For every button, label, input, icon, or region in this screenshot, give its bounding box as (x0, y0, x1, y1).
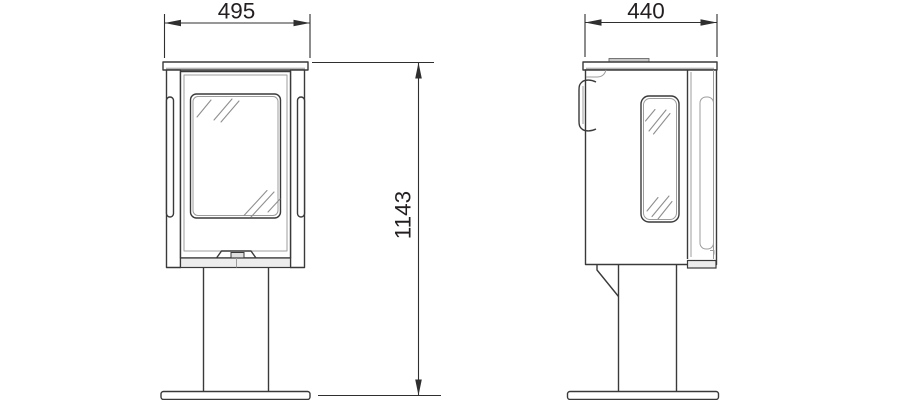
bottom-lip (688, 261, 717, 269)
plinth-strip (181, 258, 291, 268)
arrowhead-right-icon (701, 19, 718, 26)
arrowhead-left-icon (585, 19, 602, 26)
dim-label-side-depth: 440 (627, 0, 665, 24)
base-plate-side (568, 392, 719, 400)
front-view (161, 62, 310, 400)
dim-side-depth: 440 (585, 0, 717, 57)
left-air-slot (167, 97, 174, 217)
dim-label-overall-height: 1143 (391, 191, 416, 239)
dim-label-front-width: 495 (218, 0, 256, 24)
stove-body-side (586, 70, 717, 265)
dim-front-width: 495 (165, 0, 311, 58)
pedestal-sloped-cover (597, 265, 619, 297)
door-latch-handle (231, 253, 244, 259)
arrowhead-right-icon (294, 20, 311, 27)
arrowhead-down-icon (415, 380, 422, 396)
side-view (568, 59, 719, 400)
door-outer-frame (181, 72, 291, 259)
pedestal-front (204, 268, 269, 392)
right-air-slot (298, 97, 305, 217)
front-door (181, 72, 291, 259)
stove-dimension-drawing: 495 440 1143 (0, 0, 900, 400)
base-plate-front (161, 392, 310, 400)
drawing-canvas: 495 440 1143 (0, 0, 900, 400)
arrowhead-left-icon (165, 20, 182, 27)
arrowhead-up-icon (415, 63, 422, 79)
dim-overall-height: 1143 (312, 63, 441, 396)
pedestal-side (597, 265, 677, 392)
